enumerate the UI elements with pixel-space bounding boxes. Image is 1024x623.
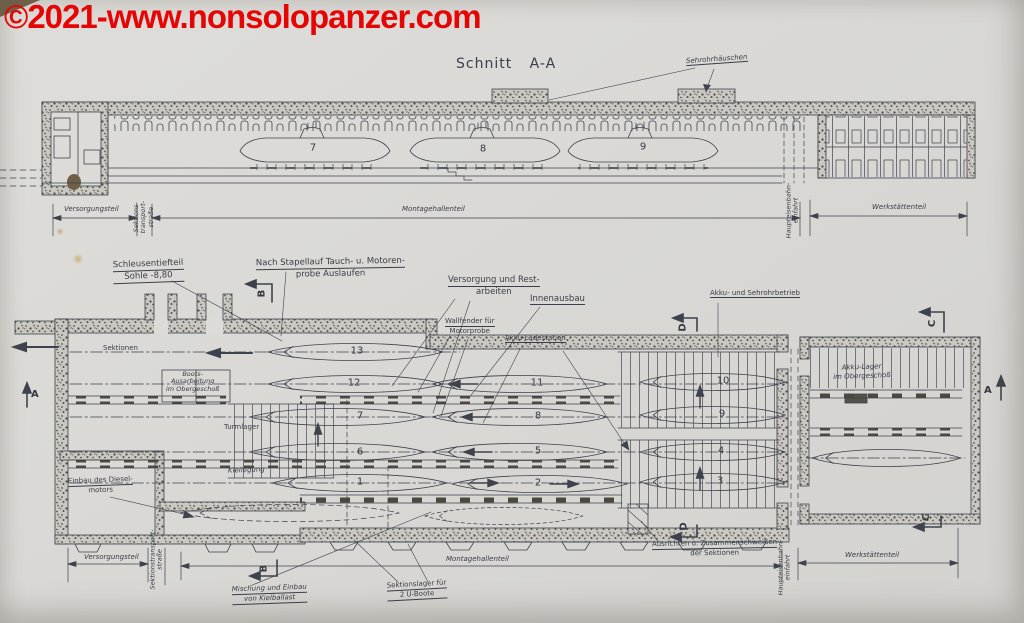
callout-boots-ausarbeitung: Boots- Ausarbeitung im Obergeschoß [166, 371, 219, 393]
section-marker-c-top: C [927, 320, 938, 327]
callout-einbau-dieselmotors: Einbau des Diesel- motors [68, 475, 134, 496]
berth-number: 3 [717, 476, 723, 487]
section-boat-number: 9 [640, 142, 646, 153]
section-marker-d-top: D [678, 323, 689, 331]
drawing-title: Schnitt A-A [456, 56, 556, 72]
dim-sektionstransportstrasse-bottom: Sektionstransport- straße [150, 524, 165, 594]
berth-number: 6 [357, 447, 363, 458]
berth-number: 8 [535, 411, 541, 422]
berth-number: 12 [348, 378, 361, 389]
section-boat-number: 7 [310, 143, 316, 154]
section-marker-a-left: A [31, 389, 39, 400]
callout-akku-ladestation: Akku-Ladestation [505, 334, 566, 343]
berth-number: 10 [717, 376, 730, 387]
section-marker-d-bottom: D [679, 522, 690, 530]
section-marker-b-top: B [256, 290, 267, 298]
callout-akku-sehrohrbetrieb: Akku- und Sehrohrbetrieb [710, 289, 800, 298]
berth-number: 4 [718, 446, 724, 457]
dim-werkstaettenteil-top: Werkstättenteil [872, 203, 926, 212]
section-marker-c-bottom: C [921, 514, 932, 521]
callout-sektionen: Sektionen [103, 344, 138, 353]
callout-mischung-kielballast: Mischung und Einbau von Kielballast [232, 583, 308, 606]
callout-innenausbau: Innenausbau [530, 294, 585, 305]
berth-number: 7 [357, 411, 363, 422]
berth-number: 13 [351, 346, 364, 357]
callout-wallfender: Wallfender für Motorprobe [445, 317, 495, 336]
callout-kiellegung: Kiellegung [228, 465, 265, 475]
callout-versorgung-restarbeiten: Versorgung und Rest- arbeiten [448, 275, 540, 298]
section-boat-number: 8 [480, 144, 486, 155]
dim-montagehallenteil-top: Montagehallenteil [402, 205, 465, 214]
callout-akku-lager: Akku-Lager im Obergeschoß [833, 362, 891, 382]
section-marker-a-right: A [984, 385, 992, 396]
watermark-text: ©2021-www.nonsolopanzer.com [4, 0, 481, 36]
dim-sektionstransportstrasse-top: Sektions- transport- straße [133, 182, 155, 252]
dim-versorgungsteil-bottom: Versorgungsteil [84, 553, 139, 562]
berth-number: 11 [531, 378, 544, 389]
callout-turmlager: Turmlager [224, 423, 259, 432]
dim-haupteisenbahn-top: Haupteisenbahn- einfahrt [786, 175, 801, 245]
callout-nach-stapellauf: Nach Stapellauf Tauch- u. Motoren- probe… [256, 256, 405, 282]
berth-number: 5 [535, 446, 541, 457]
photographed-technical-drawing: ©2021-www.nonsolopanzer.com Schnitt A-A … [0, 0, 1024, 623]
berth-number: 9 [719, 409, 725, 420]
section-marker-b-bottom: B [258, 565, 269, 573]
callout-schleusentiefteil: Schleusentiefteil Sohle -8,80 [113, 258, 184, 285]
dim-haupteisenbahn-bottom: Haupteisenbahn- einfahrt [778, 532, 793, 602]
berth-number: 1 [357, 477, 363, 488]
paper-stain [56, 228, 64, 235]
dim-montagehallenteil-bottom: Montagehallenteil [446, 555, 509, 564]
berth-number: 2 [535, 478, 541, 489]
dim-versorgungsteil-top: Versorgungsteil [64, 205, 119, 214]
callout-sektionslager: Sektionslager für 2 U-Boote [387, 578, 448, 601]
dim-werkstaettenteil-bottom: Werkstättenteil [845, 551, 899, 560]
paper-stain [72, 254, 84, 264]
callout-ausrichten: Ausrichten u. Zusammenschweißen der Sekt… [652, 538, 778, 559]
